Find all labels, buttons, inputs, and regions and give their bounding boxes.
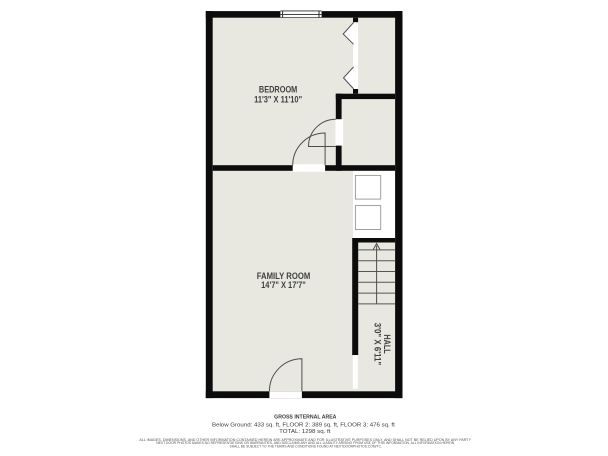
svg-text:TOTAL: 1298 sq. ft: TOTAL: 1298 sq. ft: [279, 429, 331, 435]
svg-text:11'3" X 11'10": 11'3" X 11'10": [254, 95, 302, 105]
svg-text:Below Ground: 433 sq. ft, FLOO: Below Ground: 433 sq. ft, FLOOR 2: 389 s…: [212, 423, 395, 429]
svg-text:14'7" X 17'7": 14'7" X 17'7": [261, 280, 306, 290]
svg-text:BEDROOM: BEDROOM: [259, 84, 297, 95]
svg-text:GROSS INTERNAL AREA: GROSS INTERNAL AREA: [274, 415, 337, 421]
svg-text:SHALL BE SUBJECT TO THE TERMS: SHALL BE SUBJECT TO THE TERMS AND CONDIT…: [230, 445, 382, 449]
svg-text:3'0" X 6'11": 3'0" X 6'11": [372, 323, 383, 366]
